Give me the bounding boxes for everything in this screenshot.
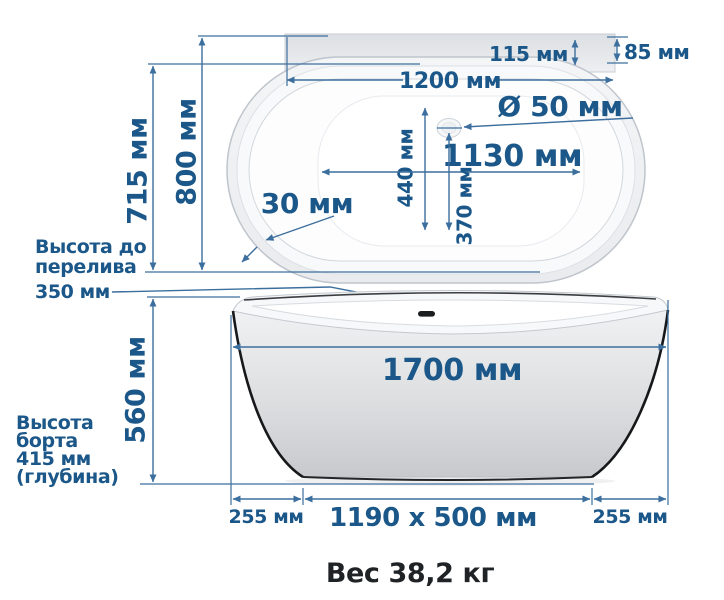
overflow-slot [418, 311, 435, 317]
dim-label-440: 440 мм [394, 128, 418, 207]
dim-label-800: 800 мм [172, 98, 203, 206]
dim-label-255-left: 255 мм [229, 506, 304, 528]
dim-label-115: 115 мм [489, 42, 568, 66]
dim-label-560: 560 мм [121, 336, 152, 444]
arrow-30-outer [242, 247, 257, 262]
dim-label-1190: 1190 x 500 мм [329, 503, 537, 533]
overflow-note-line2: перелива [35, 256, 136, 278]
dim-label-1200: 1200 мм [399, 69, 501, 94]
dim-label-715: 715 мм [123, 117, 154, 225]
dim-label-255-right: 255 мм [593, 506, 668, 528]
tub-side-body [233, 310, 668, 477]
weight-label: Вес 38,2 кг [326, 558, 495, 589]
overflow-note-value: 350 мм [35, 281, 110, 303]
diagram-svg: 800 мм 715 мм 1200 мм 115 мм 85 мм Ø 50 … [0, 0, 724, 600]
bathtub-dimension-diagram: 800 мм 715 мм 1200 мм 115 мм 85 мм Ø 50 … [0, 0, 724, 600]
side-view [233, 291, 668, 487]
overflow-note-line1: Высота до [35, 236, 147, 258]
dim-label-85: 85 мм [624, 40, 690, 64]
dim-label-drain: Ø 50 мм [497, 90, 622, 123]
dim-label-370: 370 мм [453, 166, 477, 245]
dim-label-30: 30 мм [261, 187, 354, 220]
depth-note-line4: (глубина) [16, 466, 119, 488]
dim-label-1700: 1700 мм [382, 353, 522, 388]
